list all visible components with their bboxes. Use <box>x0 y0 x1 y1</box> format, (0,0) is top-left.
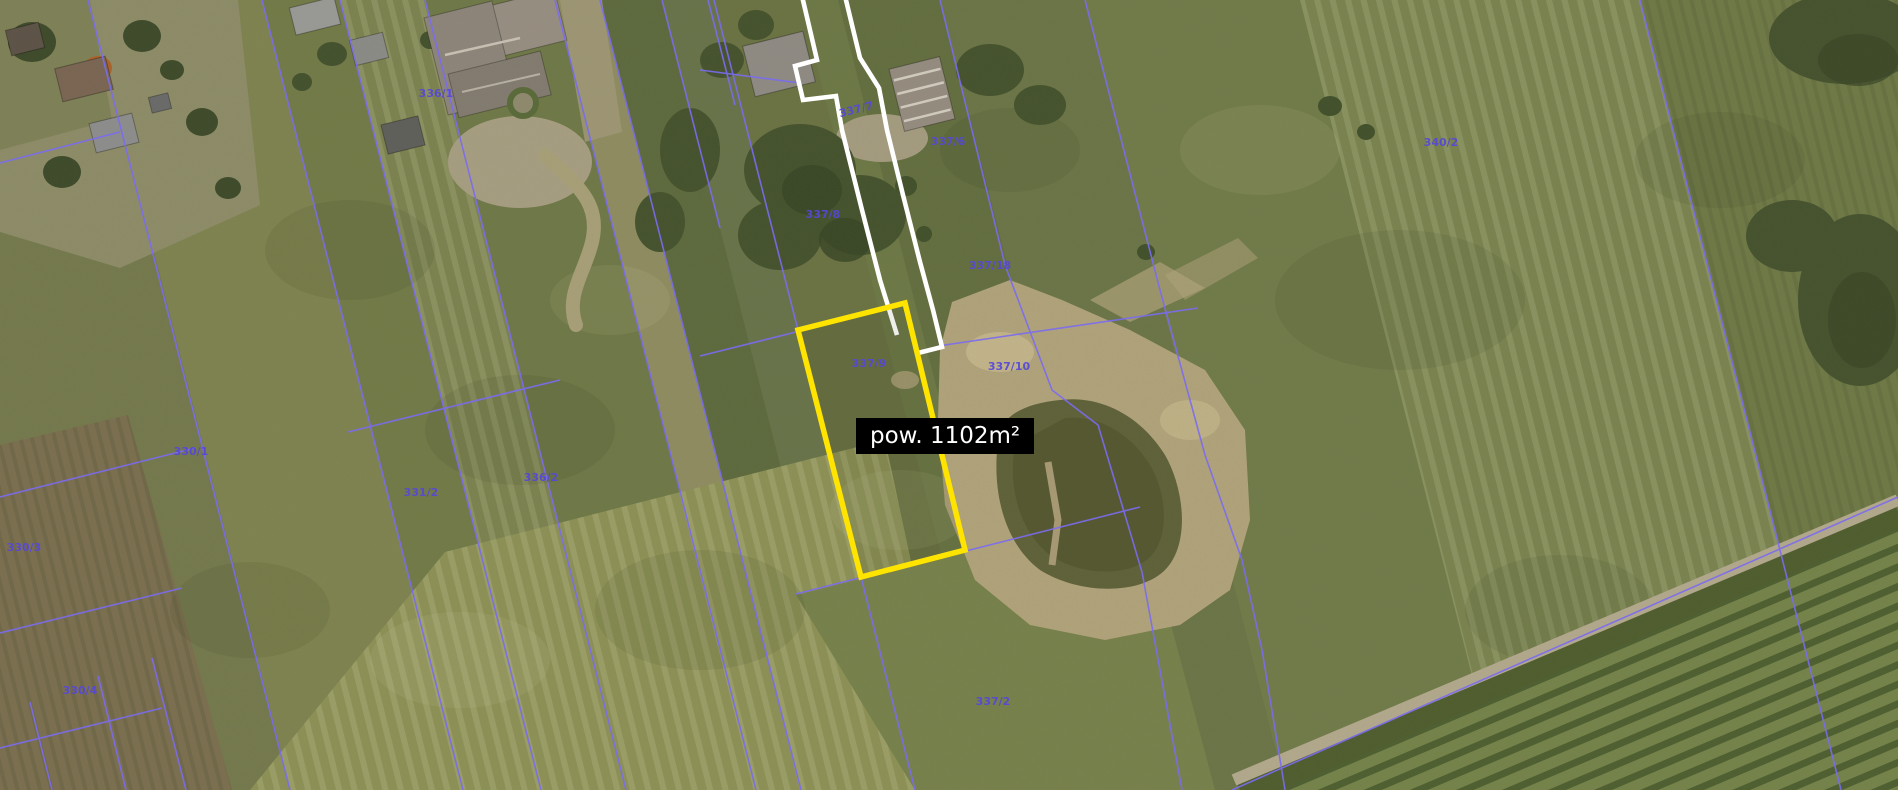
area-tooltip-text: pow. 1102m² <box>870 423 1020 449</box>
area-tooltip: pow. 1102m² <box>856 418 1034 454</box>
parcel-number-label: 330/4 <box>63 684 98 697</box>
parcel-number-label: 336/1 <box>419 87 454 100</box>
parcel-number-label: 337/10 <box>988 360 1031 373</box>
map-canvas[interactable]: 336/1 337/7 337/6 337/8 337/18 337/9 337… <box>0 0 1898 790</box>
parcel-number-label: 330/3 <box>7 541 42 554</box>
parcel-number-label: 331/2 <box>404 486 439 499</box>
aerial-map-svg: 336/1 337/7 337/6 337/8 337/18 337/9 337… <box>0 0 1898 790</box>
parcel-number-label: 337/18 <box>969 259 1011 272</box>
parcel-number-label: 337/9 <box>852 357 887 370</box>
parcel-number-label: 337/2 <box>976 695 1011 708</box>
parcel-number-label: 337/6 <box>931 135 966 148</box>
grain-texture <box>0 0 1898 790</box>
parcel-number-label: 340/2 <box>1424 136 1459 149</box>
parcel-number-label: 336/2 <box>524 471 559 484</box>
parcel-number-label: 337/8 <box>806 208 841 221</box>
parcel-number-label: 330/1 <box>174 445 209 458</box>
